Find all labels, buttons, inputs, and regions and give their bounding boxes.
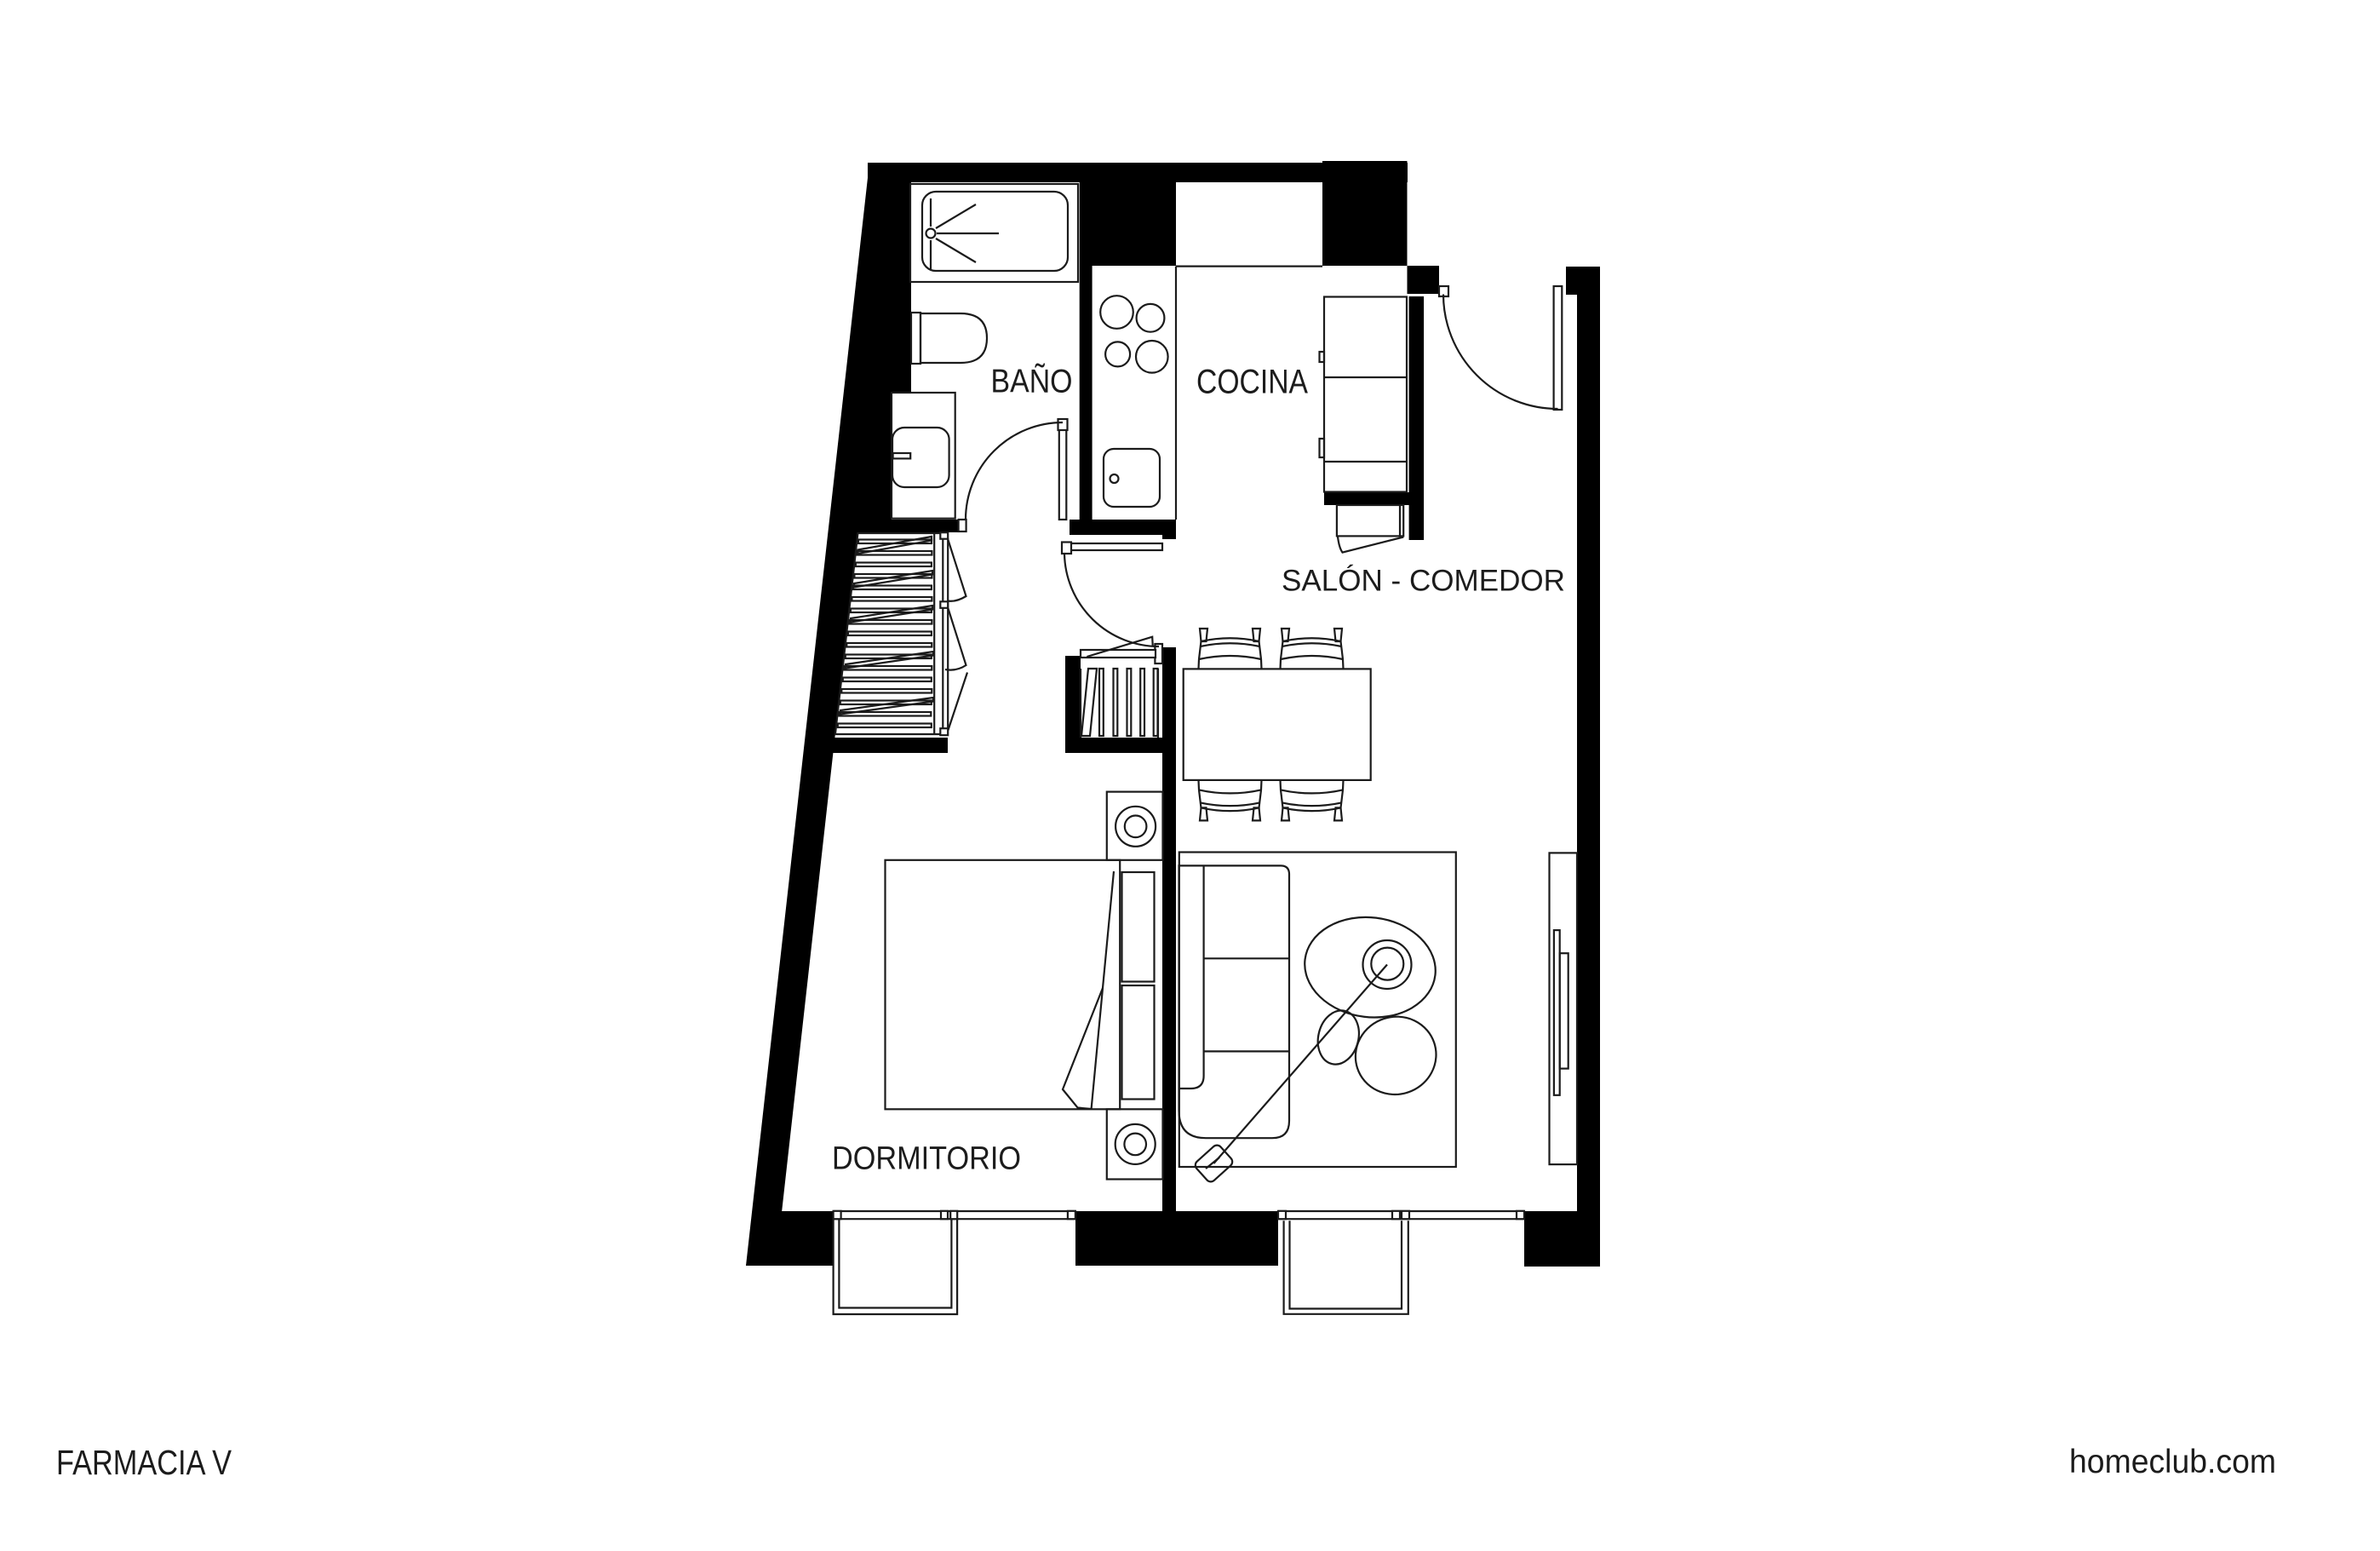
svg-text:FARMACIA V: FARMACIA V [56, 1443, 232, 1482]
svg-text:SALÓN - COMEDOR: SALÓN - COMEDOR [1282, 564, 1565, 598]
svg-text:BAÑO: BAÑO [991, 364, 1073, 400]
svg-text:DORMITORIO: DORMITORIO [832, 1140, 1021, 1176]
svg-text:COCINA: COCINA [1196, 364, 1308, 401]
svg-text:homeclub.com: homeclub.com [2069, 1444, 2276, 1480]
